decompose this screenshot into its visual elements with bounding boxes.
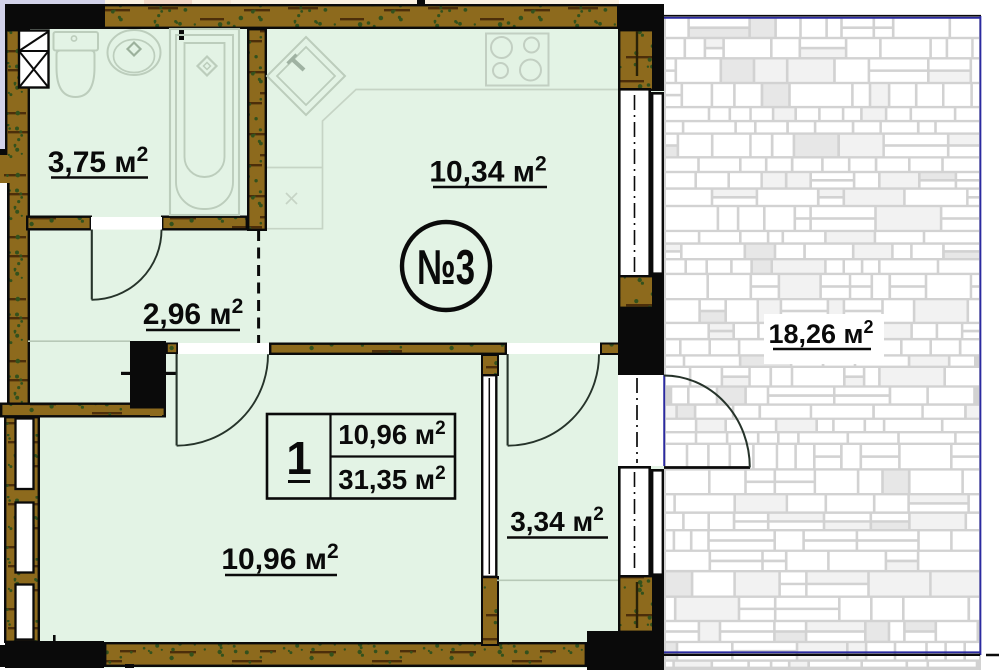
svg-text:3,34 м2: 3,34 м2	[510, 504, 604, 537]
svg-text:1: 1	[286, 432, 312, 484]
svg-text:3,75 м2: 3,75 м2	[48, 143, 149, 179]
svg-text:10,34 м2: 10,34 м2	[429, 153, 546, 189]
svg-text:10,96 м2: 10,96 м2	[221, 540, 338, 576]
svg-text:2,96 м2: 2,96 м2	[143, 295, 244, 331]
svg-text:18,26 м2: 18,26 м2	[768, 317, 873, 349]
svg-text:10,96 м2: 10,96 м2	[338, 418, 445, 450]
svg-text:31,35 м2: 31,35 м2	[338, 463, 445, 495]
svg-text:№3: №3	[417, 241, 475, 295]
